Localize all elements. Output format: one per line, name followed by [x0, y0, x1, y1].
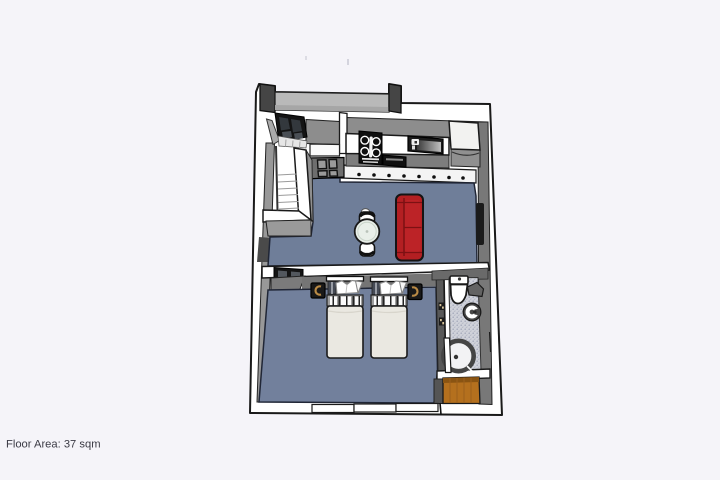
svg-text:Floor Area: 37 sqm: Floor Area: 37 sqm: [6, 439, 101, 451]
